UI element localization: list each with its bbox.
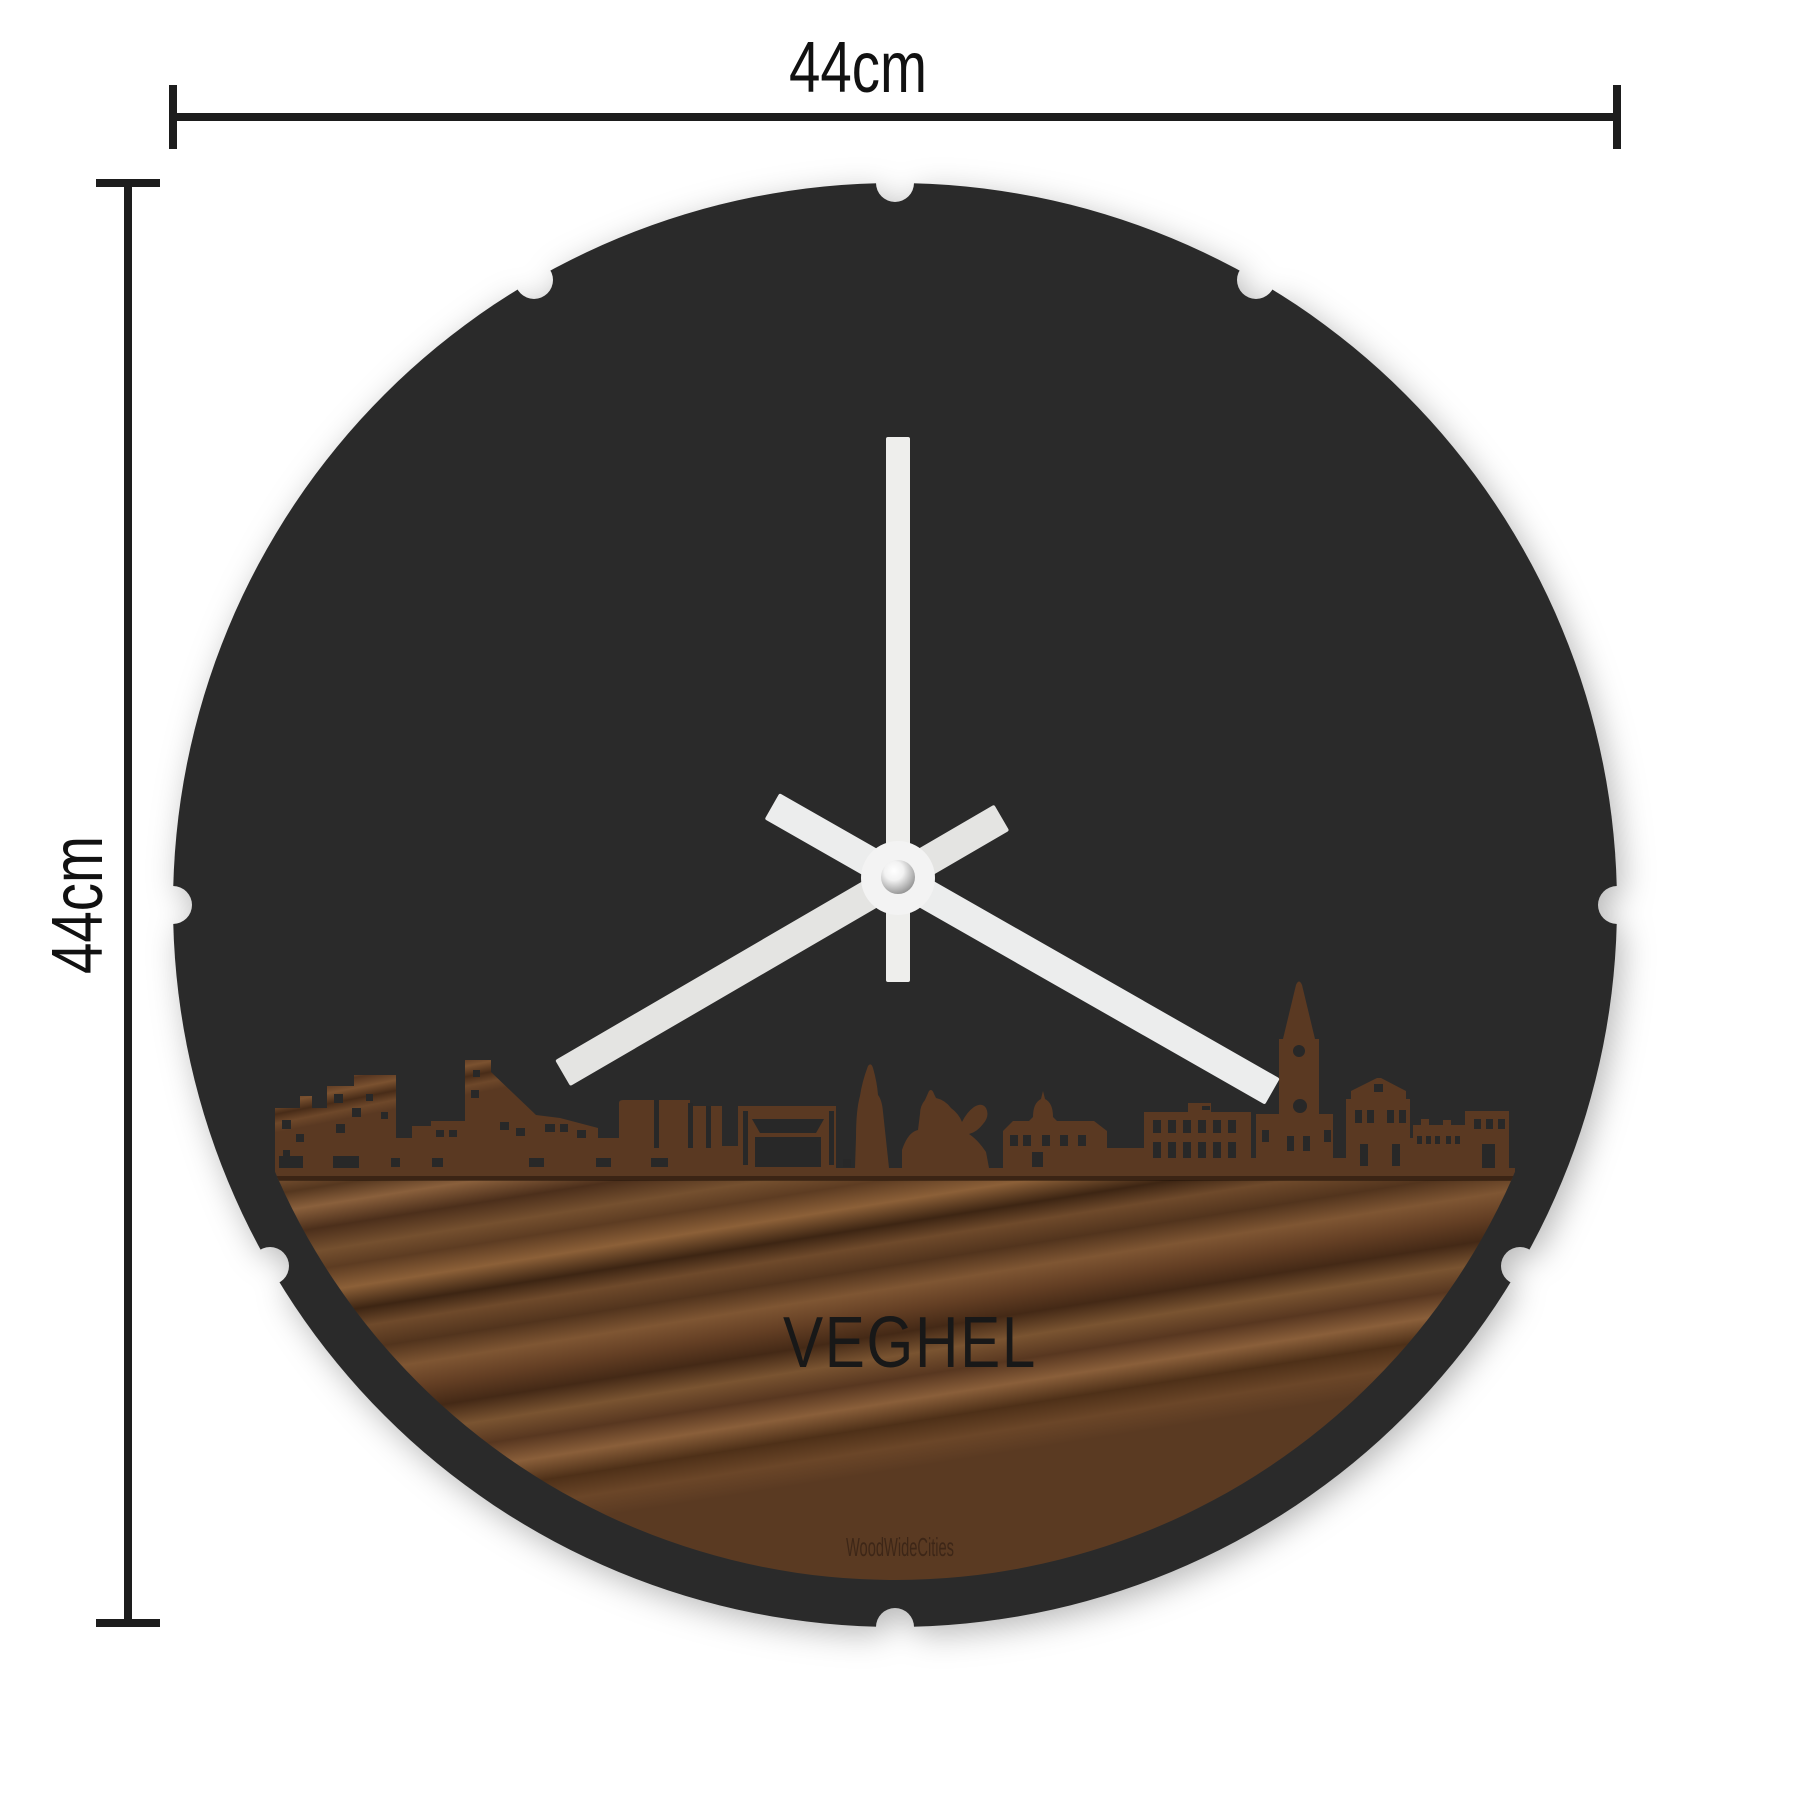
width-dimension-label: 44cm — [789, 28, 927, 108]
height-dimension: 44cm — [38, 179, 160, 1627]
skyline-baseline-seam — [240, 1176, 1560, 1181]
product-image: 44cm 44cm — [0, 0, 1800, 1800]
width-dimension-tick-left — [169, 85, 177, 149]
center-nut — [881, 860, 915, 894]
width-dimension-line — [173, 113, 1617, 121]
height-dimension-line — [124, 183, 132, 1627]
width-dimension-tick-right — [1613, 85, 1621, 149]
height-dimension-tick-bottom — [96, 1619, 160, 1627]
city-name-label: VEGHEL — [783, 1303, 1037, 1383]
height-dimension-label: 44cm — [38, 836, 118, 974]
width-dimension: 44cm — [169, 28, 1621, 149]
brand-watermark: WoodWideCities — [846, 1532, 954, 1562]
wall-clock: VEGHEL WoodWideCities — [173, 183, 1617, 1627]
clock-product-drawing: 44cm 44cm — [0, 0, 1800, 1800]
height-dimension-tick-top — [96, 179, 160, 187]
